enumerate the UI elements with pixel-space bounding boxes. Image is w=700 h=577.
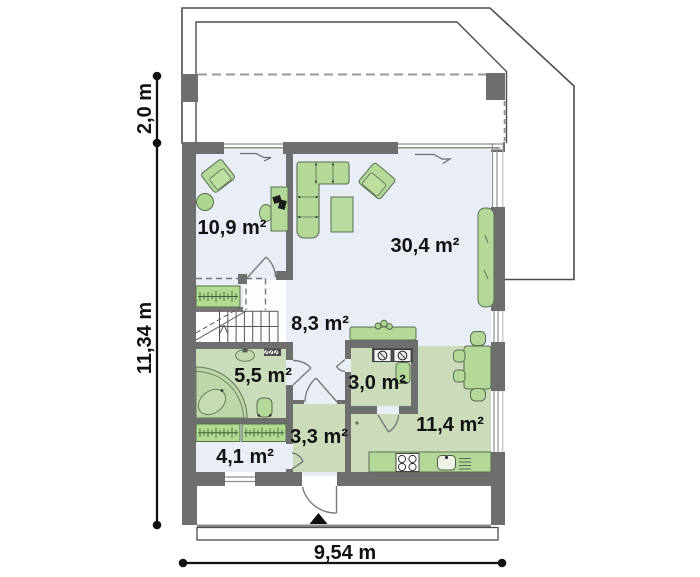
svg-text:30,4 m²: 30,4 m²: [391, 235, 460, 257]
svg-text:11,4 m²: 11,4 m²: [416, 414, 484, 436]
svg-text:2,0 m: 2,0 m: [134, 83, 156, 134]
svg-text:5,5 m²: 5,5 m²: [234, 365, 292, 387]
svg-text:11,34 m: 11,34 m: [134, 302, 156, 374]
svg-text:4,1 m²: 4,1 m²: [216, 446, 274, 468]
svg-text:~: ~: [400, 374, 408, 390]
svg-text:3,0 m²: 3,0 m²: [348, 372, 406, 394]
svg-text:10,9 m²: 10,9 m²: [198, 217, 267, 239]
svg-text:8,3 m²: 8,3 m²: [291, 313, 349, 335]
svg-text:9,54 m: 9,54 m: [314, 542, 376, 564]
svg-text:3,3 m²: 3,3 m²: [290, 426, 348, 448]
